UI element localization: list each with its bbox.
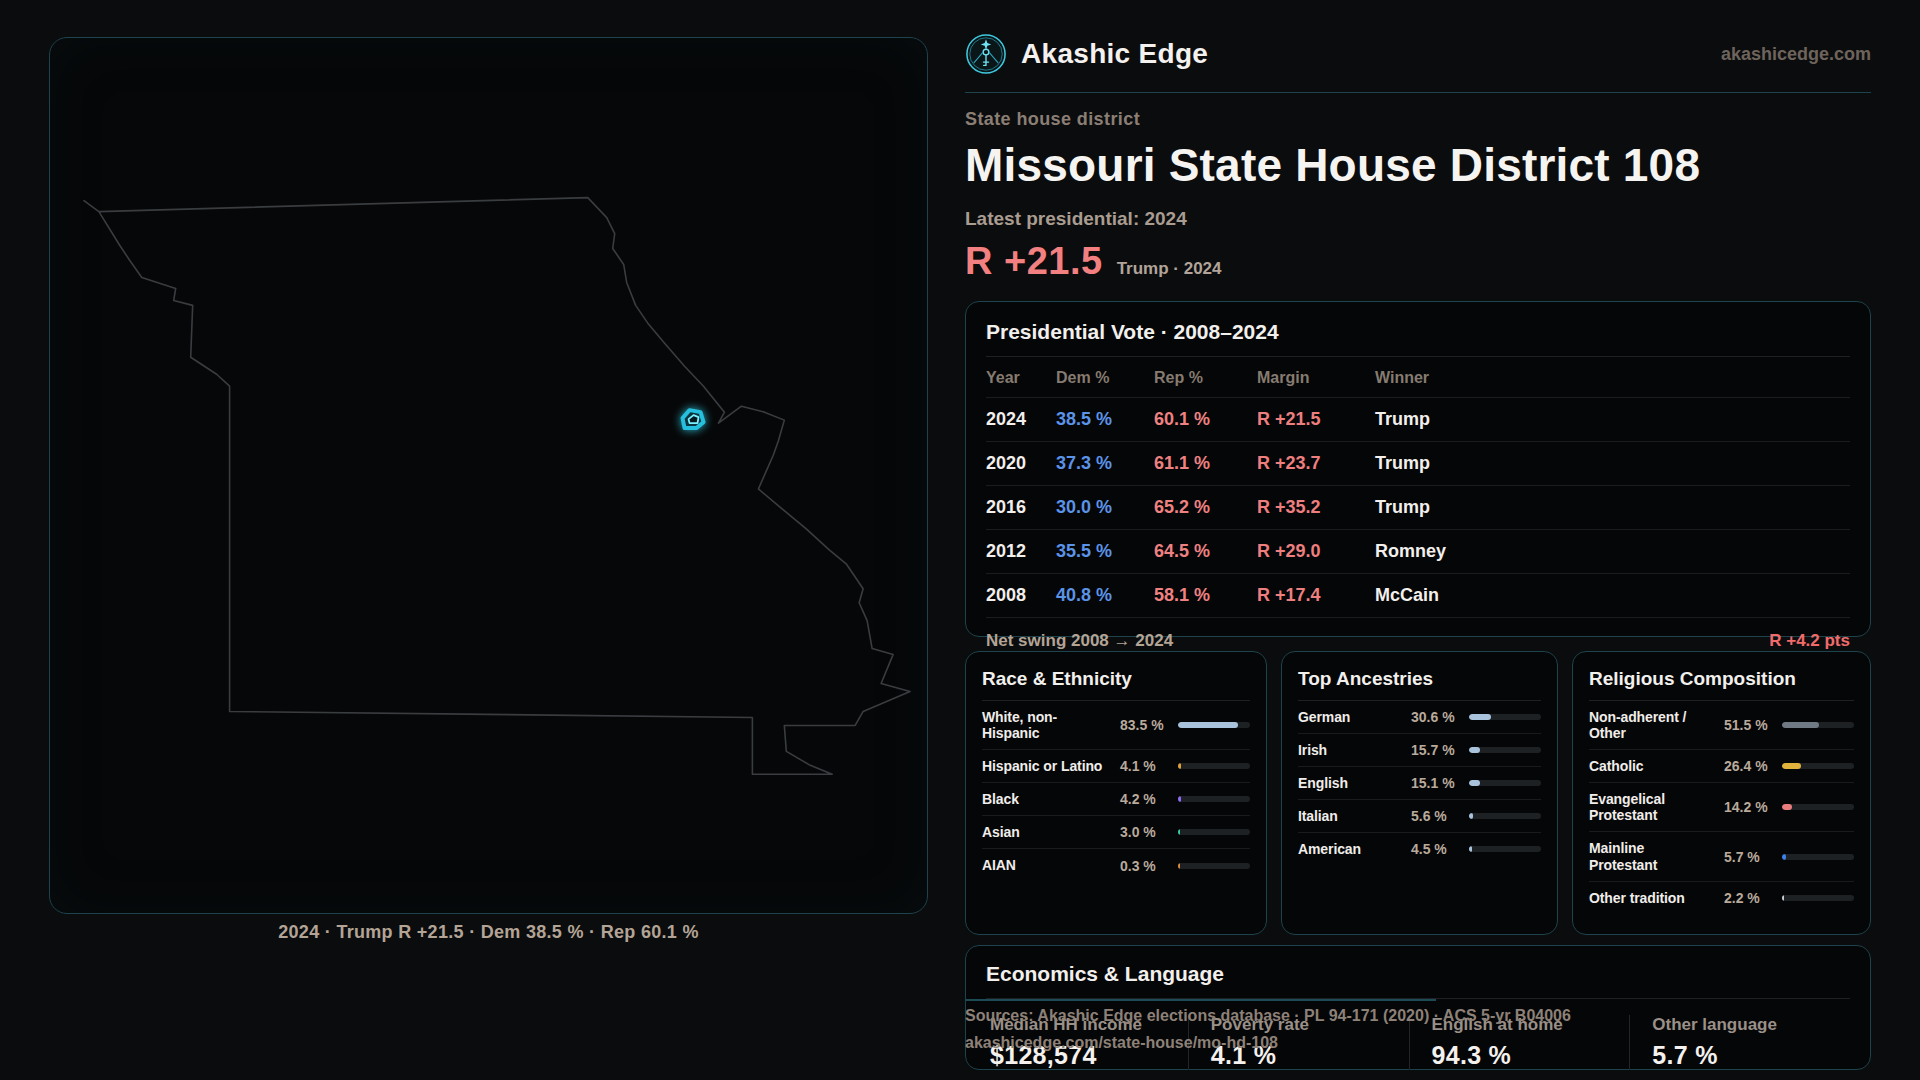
cell-margin: R +29.0 xyxy=(1257,541,1375,562)
cell-year: 2024 xyxy=(986,409,1056,430)
stat-label: Italian xyxy=(1298,808,1403,824)
stat-bar-fill xyxy=(1178,863,1180,869)
cell-year: 2016 xyxy=(986,497,1056,518)
stat-bar-track xyxy=(1469,714,1541,720)
stat-label: White, non-Hispanic xyxy=(982,709,1112,741)
cell-rep: 60.1 % xyxy=(1154,409,1257,430)
stat-bar-fill xyxy=(1469,780,1480,786)
stat-bar-fill xyxy=(1469,714,1491,720)
stat-value: 5.7 % xyxy=(1724,849,1774,865)
vote-table-row: 201235.5 %64.5 %R +29.0Romney xyxy=(986,530,1850,574)
missouri-map xyxy=(50,38,927,913)
demographics-panel: Religious CompositionNon-adherent / Othe… xyxy=(1572,651,1871,935)
stat-bar-track xyxy=(1178,829,1250,835)
stat-bar-fill xyxy=(1782,763,1801,769)
stat-bar-track xyxy=(1178,863,1250,869)
vote-table-row: 201630.0 %65.2 %R +35.2Trump xyxy=(986,486,1850,530)
economics-title: Economics & Language xyxy=(986,962,1850,986)
stat-row: Evangelical Protestant14.2 % xyxy=(1589,783,1854,832)
economics-stat-value: 94.3 % xyxy=(1432,1041,1630,1070)
cell-dem: 38.5 % xyxy=(1056,409,1154,430)
stat-label: Non-adherent / Other xyxy=(1589,709,1716,741)
cell-winner: Romney xyxy=(1375,541,1850,562)
stat-bar-track xyxy=(1178,763,1250,769)
stat-value: 51.5 % xyxy=(1724,717,1774,733)
cell-year: 2008 xyxy=(986,585,1056,606)
cell-margin: R +21.5 xyxy=(1257,409,1375,430)
stat-bar-track xyxy=(1782,854,1854,860)
stat-label: German xyxy=(1298,709,1403,725)
demographics-panel-title: Religious Composition xyxy=(1589,668,1854,690)
stat-value: 30.6 % xyxy=(1411,709,1461,725)
stat-label: AIAN xyxy=(982,857,1112,873)
vote-table-row: 200840.8 %58.1 %R +17.4McCain xyxy=(986,574,1850,618)
stat-row: Irish15.7 % xyxy=(1298,734,1541,767)
stat-row: Other tradition2.2 % xyxy=(1589,882,1854,914)
stat-bar-track xyxy=(1178,722,1250,728)
stat-row: Mainline Protestant5.7 % xyxy=(1589,832,1854,881)
stat-label: Hispanic or Latino xyxy=(982,758,1112,774)
stat-bar-fill xyxy=(1469,813,1473,819)
demographics-panel: Race & EthnicityWhite, non-Hispanic83.5 … xyxy=(965,651,1267,935)
stat-value: 14.2 % xyxy=(1724,799,1774,815)
stat-value: 4.2 % xyxy=(1120,791,1170,807)
economics-panel: Economics & Language Median HH income$12… xyxy=(965,945,1871,1070)
stat-row: White, non-Hispanic83.5 % xyxy=(982,701,1250,750)
stat-label: Mainline Protestant xyxy=(1589,840,1716,872)
vote-panel-title: Presidential Vote · 2008–2024 xyxy=(986,320,1850,344)
stat-bar-fill xyxy=(1782,895,1784,901)
stat-bar-fill xyxy=(1782,804,1792,810)
cell-dem: 35.5 % xyxy=(1056,541,1154,562)
stat-value: 4.5 % xyxy=(1411,841,1461,857)
economics-stat: Median HH income$128,574 xyxy=(986,1015,1188,1070)
brand-header: Akashic Edge akashicedge.com xyxy=(965,30,1871,78)
stat-row: Asian3.0 % xyxy=(982,816,1250,849)
stat-bar-fill xyxy=(1782,722,1819,728)
stat-bar-track xyxy=(1469,846,1541,852)
stat-bar-fill xyxy=(1469,846,1472,852)
demographics-panel-title: Race & Ethnicity xyxy=(982,668,1250,690)
cell-dem: 30.0 % xyxy=(1056,497,1154,518)
cell-winner: Trump xyxy=(1375,409,1850,430)
stat-row: AIAN0.3 % xyxy=(982,849,1250,881)
header-divider xyxy=(965,92,1871,93)
kicker-label: State house district xyxy=(965,109,1871,130)
economics-stat-label: Poverty rate xyxy=(1211,1015,1409,1035)
stat-bar-fill xyxy=(1782,854,1786,860)
page-title: Missouri State House District 108 xyxy=(965,138,1871,192)
stat-row: Non-adherent / Other51.5 % xyxy=(1589,701,1854,750)
stat-label: American xyxy=(1298,841,1403,857)
economics-stat-value: $128,574 xyxy=(990,1041,1188,1070)
stat-row: Hispanic or Latino4.1 % xyxy=(982,750,1250,783)
demographics-panel-title: Top Ancestries xyxy=(1298,668,1541,690)
stat-bar-track xyxy=(1782,763,1854,769)
cell-winner: Trump xyxy=(1375,453,1850,474)
latest-presidential-label: Latest presidential: 2024 xyxy=(965,208,1871,230)
stat-value: 5.6 % xyxy=(1411,808,1461,824)
stat-value: 15.1 % xyxy=(1411,775,1461,791)
stat-bar-track xyxy=(1469,813,1541,819)
presidential-vote-panel: Presidential Vote · 2008–2024 Year Dem %… xyxy=(965,301,1871,637)
stat-row: Italian5.6 % xyxy=(1298,800,1541,833)
stat-label: Catholic xyxy=(1589,758,1716,774)
cell-margin: R +35.2 xyxy=(1257,497,1375,518)
margin-value: R +21.5 xyxy=(965,240,1103,283)
stat-row: English15.1 % xyxy=(1298,767,1541,800)
cell-rep: 65.2 % xyxy=(1154,497,1257,518)
cell-winner: Trump xyxy=(1375,497,1850,518)
state-map-panel xyxy=(49,37,928,914)
brand-name: Akashic Edge xyxy=(1021,38,1208,70)
stat-row: Black4.2 % xyxy=(982,783,1250,816)
economics-stat-label: English at home xyxy=(1432,1015,1630,1035)
cell-year: 2012 xyxy=(986,541,1056,562)
economics-stats-row: Median HH income$128,574Poverty rate4.1 … xyxy=(986,1015,1850,1070)
akashic-emblem-icon xyxy=(965,33,1007,75)
stat-bar-fill xyxy=(1178,829,1180,835)
economics-stat: Other language5.7 % xyxy=(1629,1015,1850,1070)
margin-note: Trump · 2024 xyxy=(1117,259,1222,279)
stat-value: 0.3 % xyxy=(1120,858,1170,874)
cell-winner: McCain xyxy=(1375,585,1850,606)
net-swing-label: Net swing 2008 → 2024 xyxy=(986,631,1173,651)
district-highlight-marker[interactable] xyxy=(683,410,704,428)
cell-rep: 64.5 % xyxy=(1154,541,1257,562)
economics-stat-label: Median HH income xyxy=(990,1015,1188,1035)
stat-bar-fill xyxy=(1178,763,1181,769)
stat-bar-fill xyxy=(1178,796,1181,802)
vote-table-row: 202438.5 %60.1 %R +21.5Trump xyxy=(986,398,1850,442)
cell-margin: R +17.4 xyxy=(1257,585,1375,606)
cell-year: 2020 xyxy=(986,453,1056,474)
map-caption: 2024 · Trump R +21.5 · Dem 38.5 % · Rep … xyxy=(49,922,928,943)
stat-row: American4.5 % xyxy=(1298,833,1541,865)
stat-bar-track xyxy=(1782,722,1854,728)
cell-rep: 61.1 % xyxy=(1154,453,1257,474)
cell-dem: 37.3 % xyxy=(1056,453,1154,474)
col-year: Year xyxy=(986,369,1056,387)
cell-dem: 40.8 % xyxy=(1056,585,1154,606)
demographics-panel: Top AncestriesGerman30.6 %Irish15.7 %Eng… xyxy=(1281,651,1558,935)
stat-value: 2.2 % xyxy=(1724,890,1774,906)
missouri-outline xyxy=(84,198,910,775)
stat-label: Black xyxy=(982,791,1112,807)
stat-label: Evangelical Protestant xyxy=(1589,791,1716,823)
stat-label: English xyxy=(1298,775,1403,791)
detail-column: Akashic Edge akashicedge.com State house… xyxy=(965,30,1871,1070)
demographics-section: Race & EthnicityWhite, non-Hispanic83.5 … xyxy=(965,651,1871,935)
economics-stat-label: Other language xyxy=(1652,1015,1850,1035)
stat-bar-fill xyxy=(1469,747,1480,753)
stat-label: Irish xyxy=(1298,742,1403,758)
economics-stat: Poverty rate4.1 % xyxy=(1188,1015,1409,1070)
stat-bar-track xyxy=(1469,747,1541,753)
stat-row: German30.6 % xyxy=(1298,701,1541,734)
stat-value: 3.0 % xyxy=(1120,824,1170,840)
cell-margin: R +23.7 xyxy=(1257,453,1375,474)
stat-value: 4.1 % xyxy=(1120,758,1170,774)
stat-label: Other tradition xyxy=(1589,890,1716,906)
vote-table-row: 202037.3 %61.1 %R +23.7Trump xyxy=(986,442,1850,486)
col-margin: Margin xyxy=(1257,369,1375,387)
col-dem: Dem % xyxy=(1056,369,1154,387)
net-swing-value: R +4.2 pts xyxy=(1769,631,1850,651)
cell-rep: 58.1 % xyxy=(1154,585,1257,606)
margin-row: R +21.5 Trump · 2024 xyxy=(965,240,1871,283)
stat-value: 83.5 % xyxy=(1120,717,1170,733)
stat-bar-track xyxy=(1178,796,1250,802)
economics-stat-value: 4.1 % xyxy=(1211,1041,1409,1070)
stat-row: Catholic26.4 % xyxy=(1589,750,1854,783)
stat-bar-track xyxy=(1782,895,1854,901)
stat-label: Asian xyxy=(982,824,1112,840)
accent-line xyxy=(966,999,1436,1001)
col-rep: Rep % xyxy=(1154,369,1257,387)
vote-table-header: Year Dem % Rep % Margin Winner xyxy=(986,357,1850,398)
economics-stat: English at home94.3 % xyxy=(1409,1015,1630,1070)
vote-table-body: 202438.5 %60.1 %R +21.5Trump202037.3 %61… xyxy=(986,398,1850,618)
stat-bar-track xyxy=(1782,804,1854,810)
brand-domain-link[interactable]: akashicedge.com xyxy=(1721,44,1871,65)
stat-value: 26.4 % xyxy=(1724,758,1774,774)
stat-value: 15.7 % xyxy=(1411,742,1461,758)
stat-bar-fill xyxy=(1178,722,1238,728)
col-winner: Winner xyxy=(1375,369,1850,387)
stat-bar-track xyxy=(1469,780,1541,786)
economics-stat-value: 5.7 % xyxy=(1652,1041,1850,1070)
